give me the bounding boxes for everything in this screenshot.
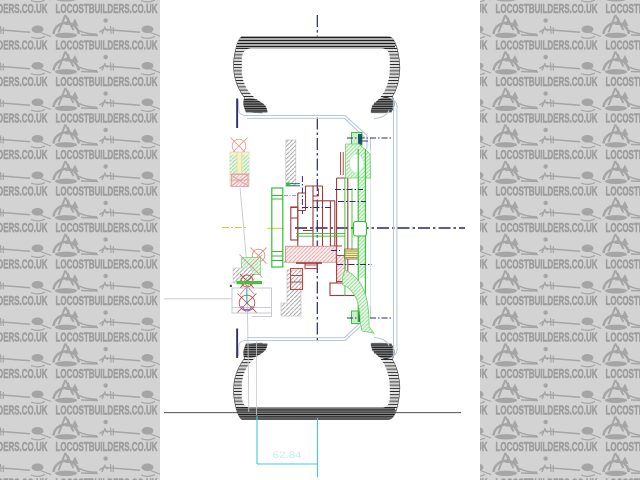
svg-text:62.84: 62.84 <box>273 450 302 460</box>
